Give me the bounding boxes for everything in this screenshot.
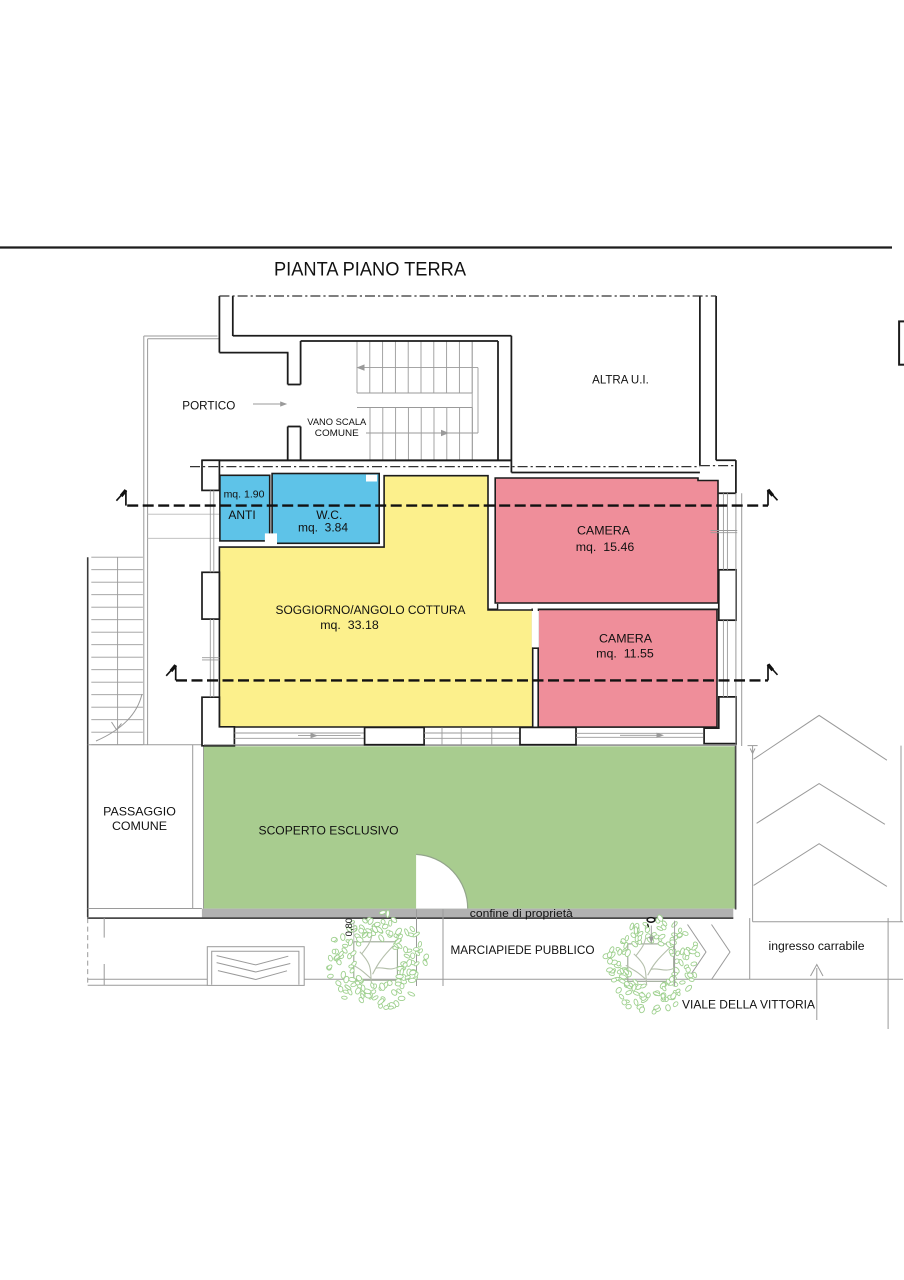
svg-text:mq. 15.46: mq. 15.46 <box>576 540 635 554</box>
svg-text:confine di proprietà: confine di proprietà <box>470 908 574 920</box>
svg-text:PORTICO: PORTICO <box>182 401 235 413</box>
svg-text:CAMERA: CAMERA <box>577 524 631 538</box>
svg-text:mq. 33.18: mq. 33.18 <box>320 618 379 632</box>
svg-text:mq. 1.90: mq. 1.90 <box>224 489 265 501</box>
svg-text:COMUNE: COMUNE <box>112 819 167 833</box>
svg-text:SCOPERTO ESCLUSIVO: SCOPERTO ESCLUSIVO <box>259 824 399 838</box>
svg-text:mq. 3.84: mq. 3.84 <box>298 521 348 535</box>
svg-text:MARCIAPIEDE PUBBLICO: MARCIAPIEDE PUBBLICO <box>451 945 595 957</box>
svg-text:VANO SCALA: VANO SCALA <box>307 417 367 427</box>
svg-text:PASSAGGIO: PASSAGGIO <box>103 805 176 819</box>
svg-text:COMUNE: COMUNE <box>315 428 359 438</box>
svg-text:0,80: 0,80 <box>344 918 355 937</box>
svg-text:VIALE DELLA VITTORIA: VIALE DELLA VITTORIA <box>682 998 815 1012</box>
svg-text:ALTRA U.I.: ALTRA U.I. <box>592 374 649 386</box>
svg-text:PIANTA PIANO TERRA: PIANTA PIANO TERRA <box>274 260 466 281</box>
svg-text:ingresso carrabile: ingresso carrabile <box>769 939 865 953</box>
svg-text:SOGGIORNO/ANGOLO COTTURA: SOGGIORNO/ANGOLO COTTURA <box>276 603 467 617</box>
svg-text:mq. 11.55: mq. 11.55 <box>596 647 654 661</box>
svg-text:ANTI: ANTI <box>228 508 255 522</box>
svg-text:CAMERA: CAMERA <box>599 632 653 646</box>
